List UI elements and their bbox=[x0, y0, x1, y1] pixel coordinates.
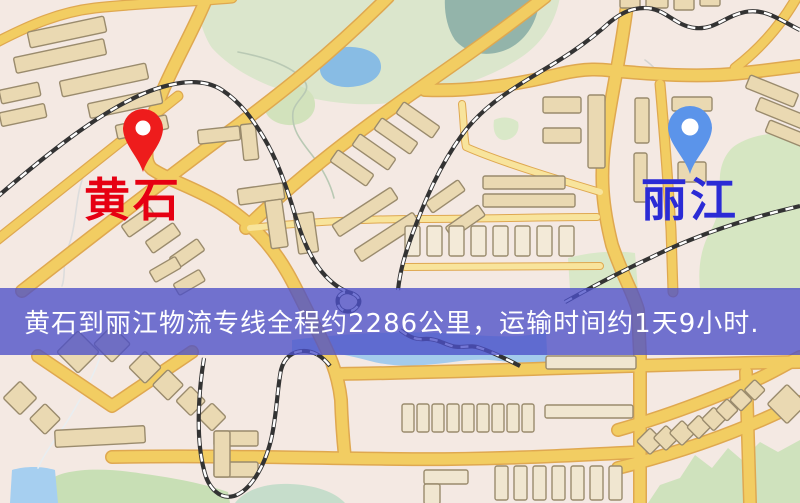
route-info-banner: 黄石到丽江物流专线全程约2286公里，运输时间约1天9小时. bbox=[0, 288, 800, 355]
origin-marker-icon[interactable] bbox=[121, 106, 165, 174]
map-canvas[interactable] bbox=[0, 0, 800, 503]
route-info-text: 黄石到丽江物流专线全程约2286公里，运输时间约1天9小时. bbox=[24, 303, 760, 340]
map-view[interactable]: 黄石 丽江 黄石到丽江物流专线全程约2286公里，运输时间约1天9小时. bbox=[0, 0, 800, 503]
origin-city-label: 黄石 bbox=[84, 177, 182, 223]
destination-city-label: 丽江 bbox=[641, 177, 739, 223]
destination-marker-icon[interactable] bbox=[666, 104, 714, 174]
